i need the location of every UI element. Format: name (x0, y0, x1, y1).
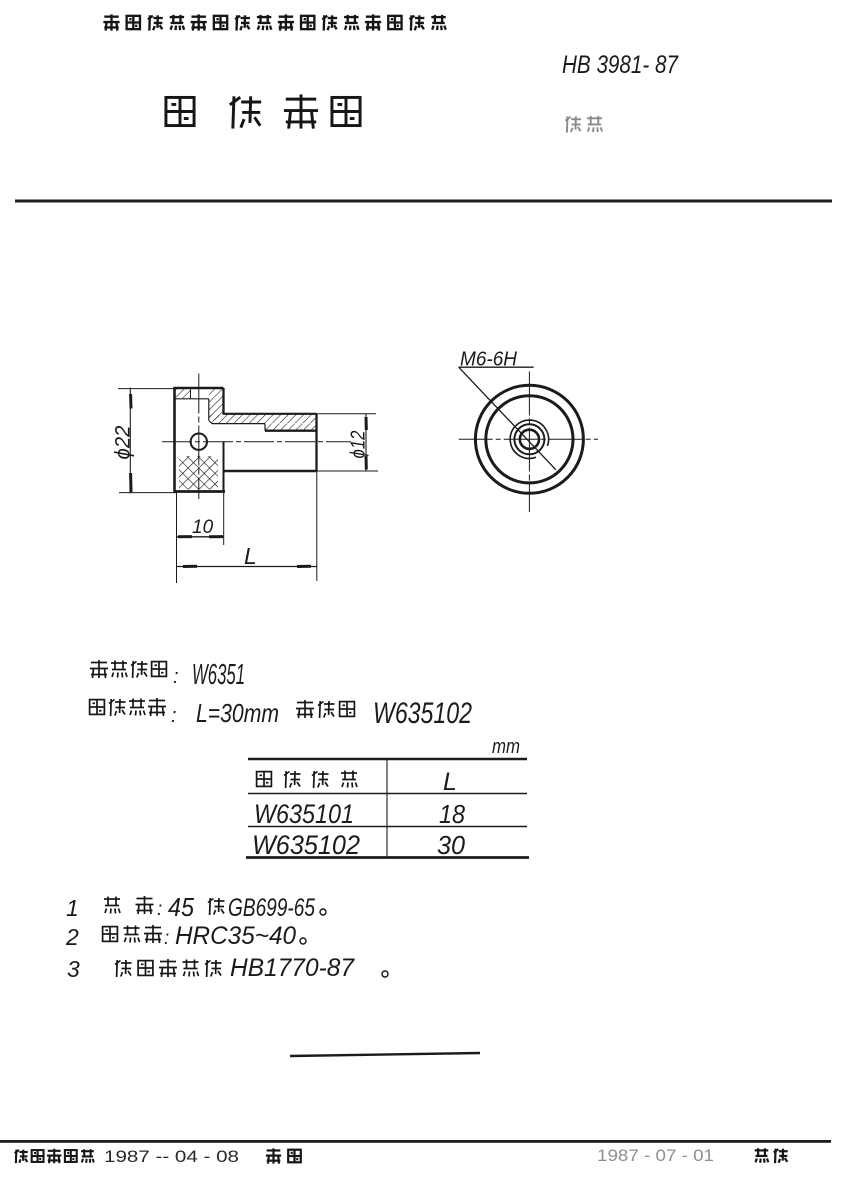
svg-text:W635102: W635102 (373, 697, 472, 730)
svg-text::: : (171, 705, 177, 727)
svg-text:HB 3981- 87: HB 3981- 87 (562, 51, 679, 79)
svg-text:ϕ12: ϕ12 (348, 431, 370, 459)
svg-text:mm: mm (492, 736, 520, 758)
svg-text:18: 18 (439, 799, 465, 829)
svg-text:L=30mm: L=30mm (196, 698, 279, 728)
svg-text:1987 -- 04 - 08: 1987 -- 04 - 08 (104, 1148, 239, 1166)
svg-text:ϕ22: ϕ22 (112, 425, 135, 459)
svg-text:L: L (443, 768, 457, 796)
svg-text:HB1770-87: HB1770-87 (230, 954, 355, 982)
svg-text::: : (157, 899, 162, 920)
svg-text:L: L (244, 543, 257, 569)
svg-text:3: 3 (67, 956, 80, 982)
svg-text:W635102: W635102 (252, 830, 360, 860)
svg-text:HRC35~40: HRC35~40 (175, 922, 296, 950)
svg-text:W6351: W6351 (192, 659, 245, 691)
svg-text:30: 30 (437, 830, 466, 860)
svg-text:M6-6H: M6-6H (460, 349, 518, 371)
svg-text:45: 45 (168, 892, 194, 922)
svg-text:2: 2 (65, 924, 79, 950)
svg-text:1987 - 07 - 01: 1987 - 07 - 01 (597, 1147, 714, 1165)
svg-text::: : (164, 928, 169, 949)
svg-text:10: 10 (192, 517, 214, 538)
svg-text::: : (173, 666, 179, 688)
svg-text:1: 1 (66, 895, 79, 921)
svg-text:GB699-65: GB699-65 (228, 894, 315, 922)
svg-text:W635101: W635101 (254, 799, 354, 829)
